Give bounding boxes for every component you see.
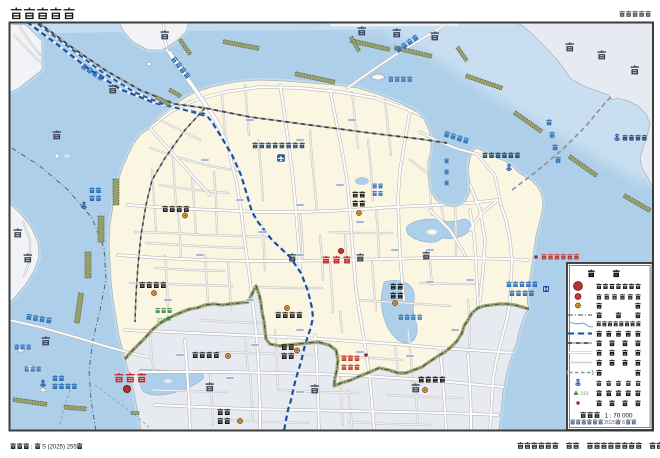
svg-text:1 : 70 000: 1 : 70 000 <box>605 413 634 420</box>
svg-text::: : <box>31 444 33 451</box>
svg-text:213: 213 <box>581 391 589 397</box>
svg-text:2025: 2025 <box>604 420 616 426</box>
svg-text:6: 6 <box>622 420 625 426</box>
svg-text:S (2025) 255: S (2025) 255 <box>42 445 77 451</box>
svg-text:213: 213 <box>157 318 166 324</box>
